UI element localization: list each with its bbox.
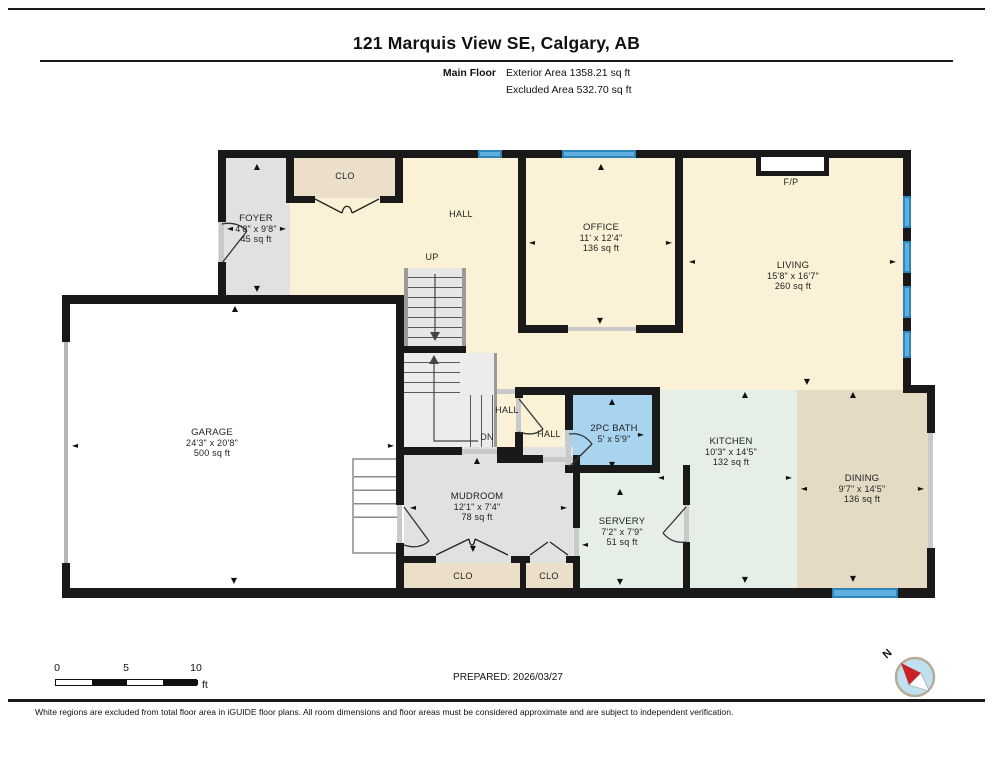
dim-arrow: ▼ [617,578,623,586]
prepared-date: PREPARED: 2026/03/27 [348,672,668,683]
floor-label: Main Floor [0,67,496,79]
wall [62,295,70,342]
window [903,286,911,318]
window [832,588,898,598]
dim-arrow: ▼ [850,575,856,583]
dim-arrow: ► [786,474,792,482]
window [562,150,636,158]
dim-arrow: ► [918,485,924,493]
title-underline-rule [40,60,953,62]
wall [502,150,562,158]
garage-steps-treads [354,464,402,524]
room-label-dining: DINING9'7" x 14'5"136 sq ft [839,474,886,504]
wall [518,150,526,333]
room-label-servery: SERVERY7'2" x 7'9"51 sq ft [599,517,645,547]
stairs-down-upper-treads [404,353,460,395]
dim-arrow: ◄ [410,504,416,512]
dim-arrow: ► [890,258,896,266]
stairs-up [404,268,466,346]
fireplace-label: F/P [784,177,799,187]
wall [903,150,911,196]
scale-tick-10: 10 [190,662,202,674]
wall [566,556,573,563]
hall-label-small: HALL [537,429,561,439]
wall [396,295,404,505]
wall [62,563,70,598]
wall [903,273,911,286]
dim-arrow: ▲ [617,488,623,496]
dim-arrow: ► [638,431,644,439]
dim-arrow: ► [561,504,567,512]
dim-arrow: ► [666,239,672,247]
floorplan-page: { "header": { "title": "121 Marquis View… [0,0,993,768]
scale-bar [55,679,197,686]
wall [515,387,523,398]
wall [683,465,690,505]
garage-door-opening-sill [397,505,402,543]
servery-door-sill [684,505,689,542]
dim-arrow: ◄ [72,442,78,450]
dining-patio-door [928,433,933,548]
room-label-living: LIVING15'8" x 16'7"260 sq ft [767,261,819,291]
scale-tick-5: 5 [123,662,129,674]
closet-label-top: CLO [335,171,354,181]
wall [675,150,683,333]
scale-bar-segment [92,680,128,685]
wall [497,447,515,463]
wall [515,455,543,463]
dim-arrow: ▲ [850,391,856,399]
dim-arrow: ▼ [470,545,476,553]
front-door-sill [219,222,224,262]
wall [218,150,478,158]
wall [218,150,226,222]
page-title: 121 Marquis View SE, Calgary, AB [0,33,993,54]
wall [395,150,403,203]
dim-arrow: ► [280,225,286,233]
window [903,241,911,273]
garage-overhead-door [64,342,68,563]
dim-arrow: ▲ [742,391,748,399]
disclaimer-text: White regions are excluded from total fl… [35,707,733,717]
footer-rule [8,699,985,702]
dim-arrow: ▼ [804,378,810,386]
dim-arrow: ▲ [232,305,238,313]
mudroom-opening-sill [462,449,497,454]
wall [404,556,436,563]
wall [903,358,911,393]
wall [573,556,580,598]
excluded-area-text: Excluded Area 532.70 sq ft [506,84,632,96]
wall [400,447,462,455]
mudroom-servery-sill [574,528,579,556]
wall [396,543,404,588]
fireplace-niche [756,152,829,176]
compass-north-label: N [881,647,895,661]
wall [62,588,832,598]
dim-arrow: ▼ [609,461,615,469]
dim-arrow: ▼ [742,576,748,584]
dim-arrow: ▼ [597,317,603,325]
wall [573,455,580,528]
wall [218,262,226,304]
room-label-foyer: FOYER4'8" x 9'8"45 sq ft [235,214,277,244]
scale-bar-segment [163,680,199,685]
wall [515,432,523,455]
window [903,331,911,358]
room-label-mudroom: MUDROOM12'1" x 7'4"78 sq ft [451,492,504,522]
dim-arrow: ▲ [254,163,260,171]
dim-arrow: ◄ [529,239,535,247]
up-label: UP [425,252,438,262]
room-label-office: OFFICE11' x 12'4"136 sq ft [580,223,623,253]
wall [511,556,530,563]
scale-unit-label: ft [202,679,208,691]
hall-label-corridor: HALL [495,405,519,415]
dim-arrow: ▼ [254,285,260,293]
wall [927,548,935,598]
room-label-kitchen: KITCHEN10'3" x 14'5"132 sq ft [705,437,757,467]
wall [62,295,404,304]
wall [400,346,466,353]
dim-arrow: ▲ [609,398,615,406]
dim-arrow: ▲ [598,163,604,171]
wall [520,563,526,588]
dim-arrow: ◄ [689,258,695,266]
garage-entry-steps [352,458,402,554]
dim-arrow: ▲ [474,457,480,465]
closet-label-right: CLO [539,571,558,581]
corridor-door-sill [516,398,521,432]
dim-arrow: ◄ [801,485,807,493]
hall-mudroom-sill [543,457,573,462]
wall [515,387,660,395]
wall [683,542,690,598]
wall [927,385,935,433]
dim-arrow: ◄ [582,541,588,549]
top-border-rule [8,8,985,10]
wall [652,387,660,473]
room-label-garage: GARAGE24'3" x 20'8"500 sq ft [186,428,238,458]
compass-icon: N [881,647,934,696]
exterior-area-text: Exterior Area 1358.21 sq ft [506,67,630,79]
wall [565,387,573,430]
office-door-sill [568,327,636,331]
window [903,196,911,228]
wall [903,318,911,331]
dim-arrow: ◄ [658,474,664,482]
closet-label-left: CLO [453,571,472,581]
dim-arrow: ▼ [231,577,237,585]
hall-opening-sill [497,389,515,394]
window [478,150,502,158]
dim-arrow: ► [388,442,394,450]
hall-label-upper: HALL [449,209,473,219]
room-label-bath: 2PC BATH5' x 5'9" [590,424,637,444]
wall [903,228,911,241]
dim-arrow: ◄ [227,225,233,233]
wall [286,150,294,203]
dn-label: DN [480,432,494,442]
scale-tick-0: 0 [54,662,60,674]
